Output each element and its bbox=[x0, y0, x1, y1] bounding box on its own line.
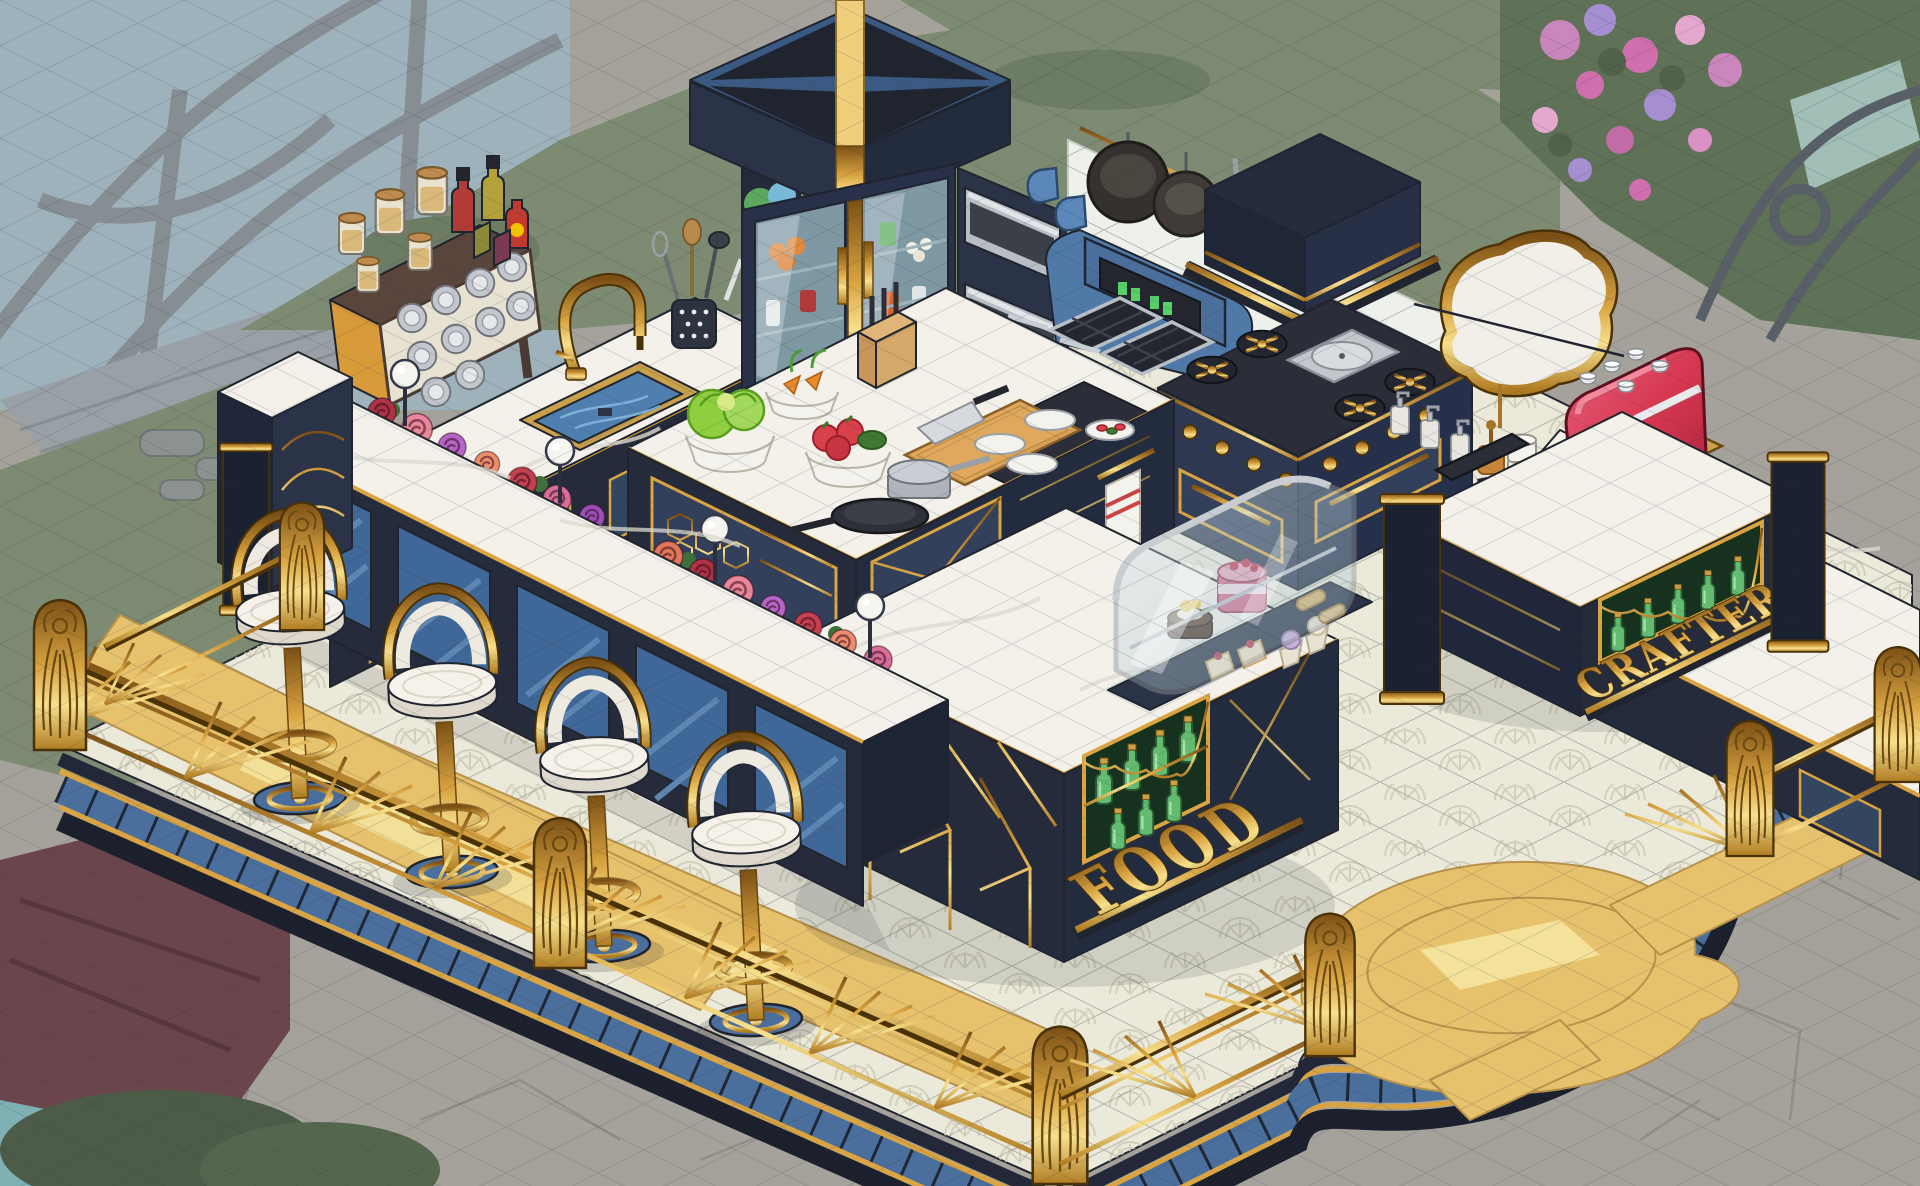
scene-canvas: FOOD bbox=[0, 0, 1920, 1186]
build-grid-overlay bbox=[0, 0, 1920, 1186]
game-viewport: FOOD bbox=[0, 0, 1920, 1186]
